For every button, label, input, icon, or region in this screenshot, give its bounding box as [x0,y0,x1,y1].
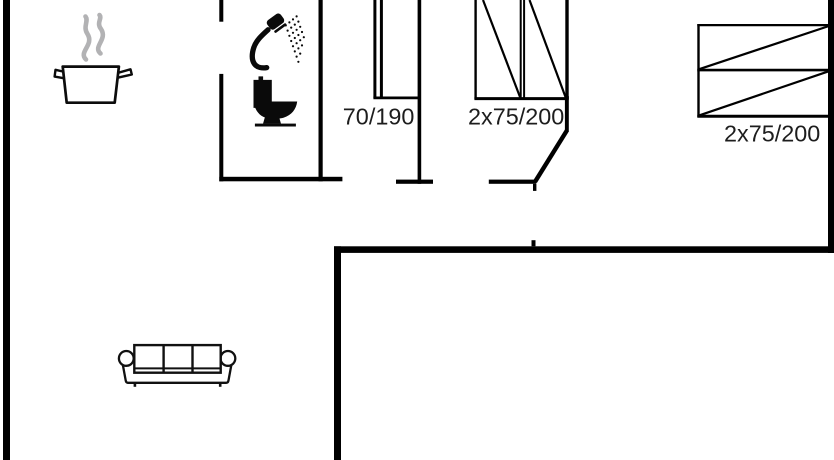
svg-text:70/190: 70/190 [343,103,415,129]
svg-text:2x75/200: 2x75/200 [724,120,820,146]
svg-text:2x75/200: 2x75/200 [468,103,564,129]
